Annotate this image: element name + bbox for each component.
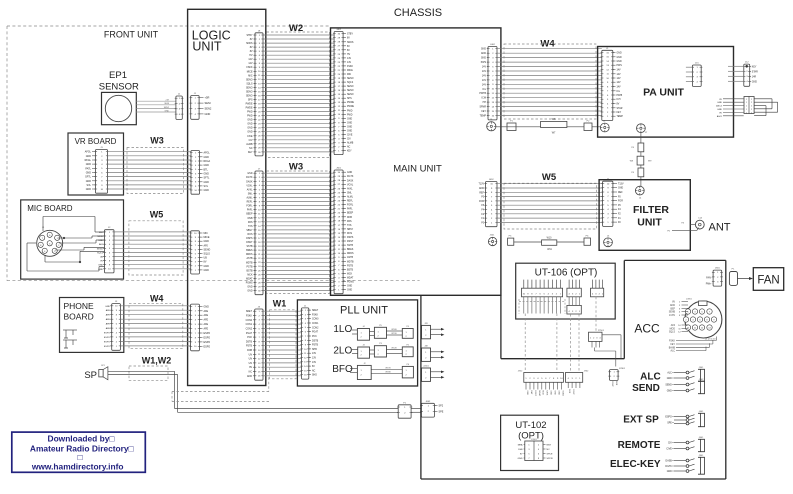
svg-text:GND: GND	[165, 111, 170, 113]
svg-text:GND: GND	[86, 188, 92, 191]
svg-text:J401: J401	[699, 411, 705, 413]
svg-text:GND: GND	[550, 391, 552, 396]
svg-text:FAN: FAN	[757, 275, 779, 287]
svg-text:CON2: CON2	[312, 327, 319, 329]
svg-text:SENO: SENO	[347, 86, 354, 88]
svg-text:NC: NC	[312, 370, 316, 372]
svg-text:EXT SP: EXT SP	[623, 415, 659, 426]
svg-text:J801: J801	[715, 268, 721, 270]
svg-text:GND: GND	[347, 130, 352, 132]
svg-text:W5: W5	[542, 172, 557, 183]
svg-text:ESPO: ESPO	[204, 336, 211, 339]
svg-text:MDTB: MDTB	[246, 262, 253, 264]
svg-text:SFMR: SFMR	[479, 107, 486, 109]
svg-text:MEA: MEA	[518, 444, 523, 447]
svg-text:ASC2: ASC2	[716, 105, 722, 108]
svg-text:CIVE: CIVE	[347, 134, 353, 136]
svg-text:DSST: DSST	[534, 391, 536, 397]
svg-text:SNDS: SNDS	[347, 42, 354, 44]
svg-text:CIVE: CIVE	[247, 136, 253, 138]
svg-text:J301: J301	[699, 367, 705, 369]
svg-text:DASK: DASK	[347, 179, 354, 182]
svg-text:COLP: COLP	[572, 389, 574, 395]
svg-text:BRES: BRES	[246, 250, 253, 252]
svg-text:PWD: PWD	[347, 114, 353, 116]
svg-text:BOARD: BOARD	[64, 312, 94, 322]
svg-text:GND: GND	[204, 269, 210, 272]
svg-text:PGAT: PGAT	[246, 332, 253, 335]
svg-text:DASB: DASB	[666, 460, 673, 463]
svg-text:SENO: SENO	[347, 94, 354, 96]
svg-text:MIC: MIC	[248, 75, 253, 77]
svg-text:GND: GND	[752, 81, 757, 83]
svg-text:BANB: BANB	[669, 346, 676, 349]
svg-text:PAFL: PAFL	[347, 208, 353, 211]
svg-text:13V: 13V	[312, 362, 317, 364]
svg-text:SENB: SENB	[669, 312, 676, 314]
svg-text:COLP: COLP	[611, 381, 613, 387]
svg-text:UN: UN	[249, 363, 253, 365]
svg-text:SVL: SVL	[204, 185, 209, 188]
svg-text:MIC BOARD: MIC BOARD	[27, 204, 73, 213]
svg-text:GND: GND	[247, 120, 252, 122]
svg-text:PCK: PCK	[312, 336, 317, 338]
svg-text:BFO: BFO	[332, 364, 353, 375]
svg-text:SSB: SSB	[518, 449, 523, 451]
svg-text:TEMP: TEMP	[480, 116, 487, 118]
svg-text:UNIT: UNIT	[637, 217, 662, 229]
svg-text:GND: GND	[526, 391, 528, 396]
svg-text:SENO: SENO	[204, 248, 211, 251]
svg-text:AFE: AFE	[204, 314, 209, 317]
svg-text:GND: GND	[205, 112, 211, 116]
svg-text:8V: 8V	[312, 366, 315, 368]
svg-text:GND: GND	[618, 188, 623, 190]
svg-text:GND: GND	[204, 305, 210, 308]
svg-text:AFE: AFE	[106, 323, 111, 326]
svg-text:J402: J402	[336, 29, 342, 31]
svg-text:8V: 8V	[250, 39, 253, 41]
svg-text:SPS: SPS	[248, 100, 253, 102]
svg-text:PWDE: PWDE	[347, 102, 354, 104]
svg-text:1: 1	[746, 99, 747, 101]
svg-text:PSTB: PSTB	[347, 265, 353, 267]
svg-text:ASCI: ASCI	[717, 115, 722, 118]
svg-text:SENO: SENO	[246, 79, 253, 81]
svg-text:GND: GND	[717, 102, 722, 104]
svg-text:SEN2: SEN2	[164, 107, 170, 109]
svg-text:GND: GND	[481, 58, 486, 60]
svg-text:BRES: BRES	[347, 249, 354, 251]
svg-text:14V: 14V	[617, 78, 622, 80]
svg-text:DSTB: DSTB	[246, 341, 253, 343]
svg-text:PWTB: PWTB	[479, 93, 486, 95]
svg-text:SML: SML	[248, 193, 253, 195]
svg-text:DSNT: DSNT	[246, 242, 253, 244]
svg-text:PWD: PWD	[247, 116, 253, 118]
svg-text:+5R: +5R	[165, 100, 169, 102]
svg-text:MIC: MIC	[347, 74, 352, 76]
svg-text:MST: MST	[547, 445, 552, 447]
svg-text:J602: J602	[426, 401, 432, 403]
svg-text:FILTER: FILTER	[633, 204, 669, 216]
svg-text:SPS: SPS	[347, 98, 352, 100]
svg-text:J2001: J2001	[423, 366, 429, 368]
svg-text:2: 2	[751, 109, 752, 111]
svg-text:HV: HV	[249, 55, 253, 57]
svg-text:KEY: KEY	[248, 152, 253, 154]
svg-text:MAIN UNIT: MAIN UNIT	[393, 164, 442, 175]
svg-text:AVXL: AVXL	[347, 187, 353, 190]
svg-text:SENO: SENO	[246, 87, 253, 89]
svg-text:SPE: SPE	[439, 410, 444, 413]
svg-text:GND: GND	[347, 290, 352, 292]
svg-text:CIV: CIV	[249, 140, 253, 142]
svg-text:GND: GND	[86, 163, 92, 166]
svg-text:14V: 14V	[347, 62, 352, 64]
svg-text:SOE: SOE	[615, 381, 617, 386]
svg-text:GND: GND	[558, 391, 560, 396]
svg-text:UB: UB	[100, 257, 104, 259]
svg-text:WRS: WRS	[546, 391, 548, 396]
svg-text:1: 1	[746, 102, 747, 104]
svg-text:GND: GND	[347, 126, 352, 128]
svg-text:ESPO: ESPO	[104, 337, 110, 339]
svg-text:1: 1	[746, 106, 747, 108]
svg-text:1: 1	[746, 112, 747, 114]
svg-text:SBSY: SBSY	[246, 230, 253, 232]
svg-text:W3: W3	[150, 136, 164, 146]
svg-text:ALMB: ALMB	[246, 143, 253, 146]
svg-text:SQLS: SQLS	[204, 253, 211, 256]
svg-text:AFE: AFE	[204, 310, 209, 313]
svg-text:ANT: ANT	[709, 222, 731, 234]
svg-text:2: 2	[751, 102, 752, 104]
svg-text:SNDS: SNDS	[246, 43, 253, 45]
svg-text:J501: J501	[490, 235, 496, 237]
svg-text:+5R: +5R	[205, 96, 210, 100]
svg-text:GND: GND	[617, 53, 622, 55]
svg-text:13.8V: 13.8V	[669, 315, 675, 317]
svg-text:DSPS: DSPS	[246, 238, 253, 240]
svg-text:FOR: FOR	[479, 201, 484, 203]
svg-text:AF0: AF0	[671, 324, 676, 327]
svg-text:PWS: PWS	[481, 62, 487, 64]
svg-text:FAN+: FAN+	[706, 283, 712, 286]
svg-text:ALML: ALML	[347, 196, 354, 199]
svg-text:ALMB: ALMB	[347, 142, 354, 145]
svg-text:BSTB: BSTB	[347, 269, 353, 271]
svg-text:MICE: MICE	[347, 70, 353, 72]
svg-text:J402: J402	[490, 44, 496, 46]
svg-text:GND: GND	[98, 265, 103, 267]
svg-text:8V: 8V	[250, 51, 253, 53]
svg-text:SFTL: SFTL	[204, 177, 211, 180]
svg-text:SPCR: SPCR	[547, 458, 553, 460]
svg-text:FSKK: FSKK	[312, 314, 318, 316]
svg-text:ESPO: ESPO	[204, 345, 211, 348]
svg-text:DRDS: DRDS	[347, 253, 354, 255]
svg-text:AFE: AFE	[204, 323, 209, 326]
svg-text:UNIT: UNIT	[192, 40, 222, 54]
svg-text:RFGA: RFGA	[204, 160, 211, 163]
svg-text:14V: 14V	[482, 75, 487, 77]
svg-text:MDTB: MDTB	[347, 261, 354, 263]
svg-text:EP1: EP1	[109, 70, 127, 81]
svg-text:MCK: MCK	[247, 274, 253, 276]
svg-text:PSTB: PSTB	[247, 266, 253, 268]
svg-text:ASTB: ASTB	[347, 256, 353, 259]
svg-text:STBY: STBY	[347, 34, 353, 36]
svg-text:W5: W5	[150, 210, 164, 220]
svg-text:14V: 14V	[482, 84, 487, 86]
svg-text:FORL: FORL	[347, 205, 354, 207]
svg-text:MIC: MIC	[99, 232, 103, 234]
svg-text:KEY: KEY	[752, 66, 757, 68]
svg-text:SQLS: SQLS	[97, 252, 103, 254]
svg-text:GND: GND	[347, 122, 352, 124]
svg-text:AFE: AFE	[106, 314, 111, 317]
svg-text:DSNT: DSNT	[347, 241, 354, 243]
svg-text:GND: GND	[518, 458, 523, 460]
svg-text:SP2: SP2	[439, 405, 444, 408]
svg-text:MDAT: MDAT	[347, 277, 354, 280]
svg-text:NC: NC	[249, 372, 253, 374]
svg-text:ESPO: ESPO	[204, 332, 211, 335]
svg-text:MICE: MICE	[247, 71, 253, 73]
svg-text:MICE: MICE	[98, 236, 104, 238]
svg-text:CIV: CIV	[668, 443, 672, 445]
svg-text:AFGL: AFGL	[85, 151, 92, 154]
svg-text:DGTK: DGTK	[246, 177, 253, 179]
svg-text:MIC: MIC	[204, 232, 209, 235]
svg-text:MDAT: MDAT	[246, 278, 253, 281]
svg-text:DNB: DNB	[248, 218, 253, 220]
svg-text:SHB: SHB	[312, 349, 317, 351]
svg-text:ALC: ALC	[640, 371, 661, 382]
svg-text:SQLS: SQLS	[669, 332, 676, 334]
svg-text:ESPO: ESPO	[204, 341, 211, 344]
svg-text:CON2: CON2	[246, 328, 253, 330]
svg-text:CON1: CON1	[246, 324, 253, 326]
svg-text:GND: GND	[667, 471, 672, 473]
svg-text:14V: 14V	[248, 63, 253, 65]
svg-text:SENSOR: SENSOR	[99, 82, 139, 93]
svg-text:FSKK: FSKK	[246, 316, 252, 318]
svg-text:ALML: ALML	[246, 197, 253, 200]
svg-text:14R: 14R	[752, 76, 757, 78]
svg-text:□: □	[77, 452, 82, 462]
svg-text:KEY: KEY	[617, 112, 622, 114]
svg-text:13V: 13V	[312, 353, 317, 355]
svg-text:CON0: CON0	[312, 319, 319, 321]
svg-text:ROS: ROS	[347, 233, 352, 235]
svg-text:1LO: 1LO	[333, 324, 352, 335]
svg-text:SENO: SENO	[347, 78, 354, 80]
svg-text:UN: UN	[249, 354, 253, 356]
svg-text:SHD: SHD	[554, 391, 556, 396]
svg-text:UT-102: UT-102	[515, 420, 546, 431]
svg-text:14V: 14V	[482, 67, 487, 69]
svg-text:CIVE: CIVE	[666, 449, 672, 451]
svg-text:PLL UNIT: PLL UNIT	[340, 305, 388, 317]
svg-text:SVL: SVL	[86, 184, 91, 187]
svg-text:DNB: DNB	[347, 217, 352, 219]
svg-text:W15B: W15B	[391, 333, 397, 335]
svg-text:AVXL: AVXL	[247, 188, 253, 191]
svg-text:GND: GND	[204, 240, 210, 243]
svg-text:KEY: KEY	[481, 111, 486, 113]
svg-text:MOD: MOD	[670, 328, 676, 330]
svg-text:SRET: SRET	[312, 310, 319, 312]
svg-text:GND: GND	[481, 49, 486, 51]
svg-text:STBY: STBY	[247, 35, 253, 37]
svg-text:SENO: SENO	[246, 91, 253, 93]
svg-text:GND: GND	[717, 109, 722, 111]
svg-text:PWDE: PWDE	[246, 108, 253, 110]
svg-text:ICH: ICH	[617, 99, 621, 101]
svg-text:W1,W2: W1,W2	[142, 356, 172, 366]
svg-text:GND: GND	[347, 172, 352, 174]
svg-text:PSTB: PSTB	[312, 345, 318, 347]
svg-text:8V: 8V	[250, 47, 253, 49]
svg-text:VOXL: VOXL	[347, 184, 354, 186]
svg-text:MICE: MICE	[204, 236, 210, 239]
svg-text:GND: GND	[617, 61, 622, 63]
svg-text:CHASSIS: CHASSIS	[394, 7, 442, 19]
svg-text:GND: GND	[105, 306, 110, 308]
svg-text:SRET: SRET	[246, 311, 253, 313]
svg-text:2: 2	[751, 112, 752, 114]
svg-text:BEF: BEF	[671, 308, 676, 310]
svg-text:UN: UN	[249, 359, 253, 361]
svg-text:TXS: TXS	[248, 226, 253, 228]
svg-text:SQLS: SQLS	[246, 83, 253, 85]
svg-text:RFGL: RFGL	[85, 159, 92, 162]
svg-text:SEND: SEND	[665, 385, 672, 387]
svg-text:GND: GND	[247, 128, 252, 130]
svg-text:AFGL: AFGL	[204, 152, 211, 155]
svg-text:FRS: FRS	[347, 221, 352, 223]
svg-text:13 12 11 10: 13 12 11 10	[705, 339, 717, 341]
svg-text:PGMS: PGMS	[246, 283, 253, 285]
svg-text:FRS: FRS	[248, 222, 253, 224]
svg-text:REFL: REFL	[347, 201, 354, 203]
svg-text:GND: GND	[86, 180, 92, 183]
svg-text:J601: J601	[699, 437, 705, 439]
svg-text:PWD: PWD	[247, 112, 253, 114]
svg-text:GND: GND	[98, 240, 103, 242]
svg-text:VR BOARD: VR BOARD	[75, 137, 117, 146]
svg-text:GND: GND	[204, 172, 210, 175]
svg-text:PWS: PWS	[617, 65, 623, 67]
svg-text:CIV: CIV	[347, 139, 351, 141]
svg-text:GND: GND	[204, 189, 210, 192]
svg-text:PGMS: PGMS	[347, 282, 354, 284]
svg-text:W1: W1	[273, 299, 287, 309]
svg-text:SOE: SOE	[568, 389, 570, 394]
svg-text:14V: 14V	[617, 70, 622, 72]
svg-text:NC: NC	[249, 148, 253, 150]
svg-text:STAR: STAR	[617, 107, 623, 110]
svg-text:NC: NC	[547, 449, 551, 451]
svg-text:14V: 14V	[347, 58, 352, 60]
svg-text:KEY: KEY	[670, 344, 675, 346]
svg-text:PWDE: PWDE	[246, 104, 253, 106]
svg-text:BSTB: BSTB	[247, 270, 253, 272]
svg-text:J2901: J2901	[619, 368, 626, 370]
svg-text:8V: 8V	[347, 46, 350, 48]
svg-text:W4: W4	[150, 294, 164, 304]
svg-text:PWDE: PWDE	[347, 106, 354, 108]
svg-text:1: 1	[746, 109, 747, 111]
svg-text:SSTB: SSTB	[347, 245, 353, 247]
svg-text:PSTB: PSTB	[246, 346, 252, 348]
svg-text:BTL: BTL	[204, 168, 209, 171]
svg-text:AFE: AFE	[204, 319, 209, 322]
svg-text:FSKK: FSKK	[347, 66, 353, 68]
svg-text:GND: GND	[98, 269, 103, 271]
svg-text:DGTK: DGTK	[665, 466, 672, 468]
svg-text:ACC: ACC	[634, 322, 660, 336]
svg-text:DRDS: DRDS	[246, 254, 253, 256]
svg-text:ASTB: ASTB	[247, 257, 253, 260]
svg-text:J452: J452	[489, 179, 495, 181]
svg-text:GND: GND	[347, 118, 352, 120]
svg-text:AF0: AF0	[204, 244, 209, 247]
svg-text:Downloaded by□: Downloaded by□	[48, 434, 115, 444]
svg-text:REF: REF	[618, 192, 623, 194]
svg-text:REFL: REFL	[247, 202, 254, 204]
svg-text:SML: SML	[347, 192, 352, 194]
svg-text:8V: 8V	[347, 38, 350, 40]
svg-text:ESPO: ESPO	[104, 341, 110, 343]
svg-text:HH: HH	[483, 102, 487, 104]
svg-text:GND: GND	[667, 391, 672, 393]
svg-text:J302: J302	[699, 379, 705, 381]
svg-text:W17B: W17B	[385, 368, 391, 370]
svg-text:8V: 8V	[249, 367, 252, 369]
svg-text:MCK: MCK	[347, 273, 353, 275]
svg-text:GND: GND	[247, 173, 252, 175]
svg-text:FSKK: FSKK	[247, 67, 253, 69]
svg-text:8V: 8V	[617, 104, 620, 106]
svg-text:DASK: DASK	[246, 180, 253, 183]
svg-text:ALC: ALC	[667, 372, 672, 375]
svg-text:GND: GND	[247, 287, 252, 289]
svg-text:SHD: SHD	[312, 375, 317, 377]
svg-text:14V: 14V	[248, 59, 253, 61]
svg-text:REF: REF	[479, 192, 484, 194]
svg-text:SEN2: SEN2	[205, 107, 212, 111]
svg-text:14V: 14V	[617, 82, 622, 84]
svg-text:GND: GND	[247, 291, 252, 293]
svg-text:PATL: PATL	[85, 167, 91, 170]
svg-text:FSKK: FSKK	[669, 341, 675, 343]
svg-text:GND: GND	[247, 124, 252, 126]
svg-text:PCK: PCK	[247, 337, 252, 339]
svg-text:GND: GND	[479, 188, 484, 190]
svg-text:AFE: AFE	[106, 318, 111, 321]
svg-text:UB: UB	[204, 257, 208, 260]
svg-text:8V: 8V	[204, 261, 207, 264]
svg-text:AFE: AFE	[106, 309, 111, 312]
svg-text:NC: NC	[347, 147, 351, 149]
svg-text:PGAT: PGAT	[312, 331, 319, 334]
svg-text:GND: GND	[617, 57, 622, 59]
svg-text:SPE: SPE	[667, 423, 672, 425]
svg-text:SENO: SENO	[97, 248, 103, 250]
